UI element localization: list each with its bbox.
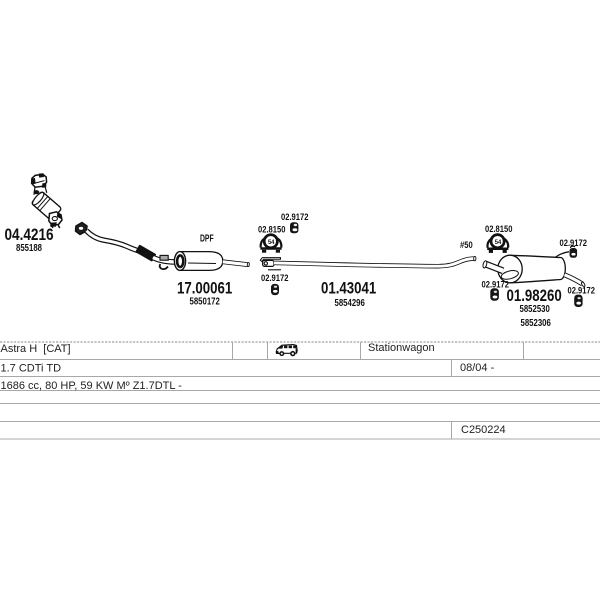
svg-text:Stationwagon: Stationwagon [368,342,435,354]
svg-text:54: 54 [495,239,502,246]
svg-text:5850172: 5850172 [190,296,220,307]
svg-text:#50: #50 [460,239,473,250]
svg-text:02.8150: 02.8150 [258,223,286,234]
svg-text:1686 cc, 80 HP, 59 KW Mº Z1.7D: 1686 cc, 80 HP, 59 KW Mº Z1.7DTL - [1,380,183,392]
svg-text:5854296: 5854296 [335,297,365,308]
svg-text:1.7 CDTi TD: 1.7 CDTi TD [1,363,62,375]
svg-text:08/04 -: 08/04 - [460,362,495,374]
svg-text:855188: 855188 [16,242,42,253]
svg-text:54: 54 [268,239,275,246]
svg-text:02.9172: 02.9172 [482,278,510,289]
svg-text:01.43041: 01.43041 [321,279,377,298]
svg-text:DPF: DPF [200,232,214,244]
svg-text:02.9172: 02.9172 [560,237,588,248]
svg-text:C250224: C250224 [461,424,506,436]
svg-text:5852306: 5852306 [521,317,551,328]
svg-text:02.9172: 02.9172 [568,285,596,296]
svg-text:Astra H [CAT]: Astra H [CAT] [1,343,71,355]
svg-text:02.9172: 02.9172 [281,211,309,222]
svg-text:02.8150: 02.8150 [485,223,513,234]
svg-text:02.9172: 02.9172 [261,272,289,283]
svg-text:5852530: 5852530 [520,303,550,314]
